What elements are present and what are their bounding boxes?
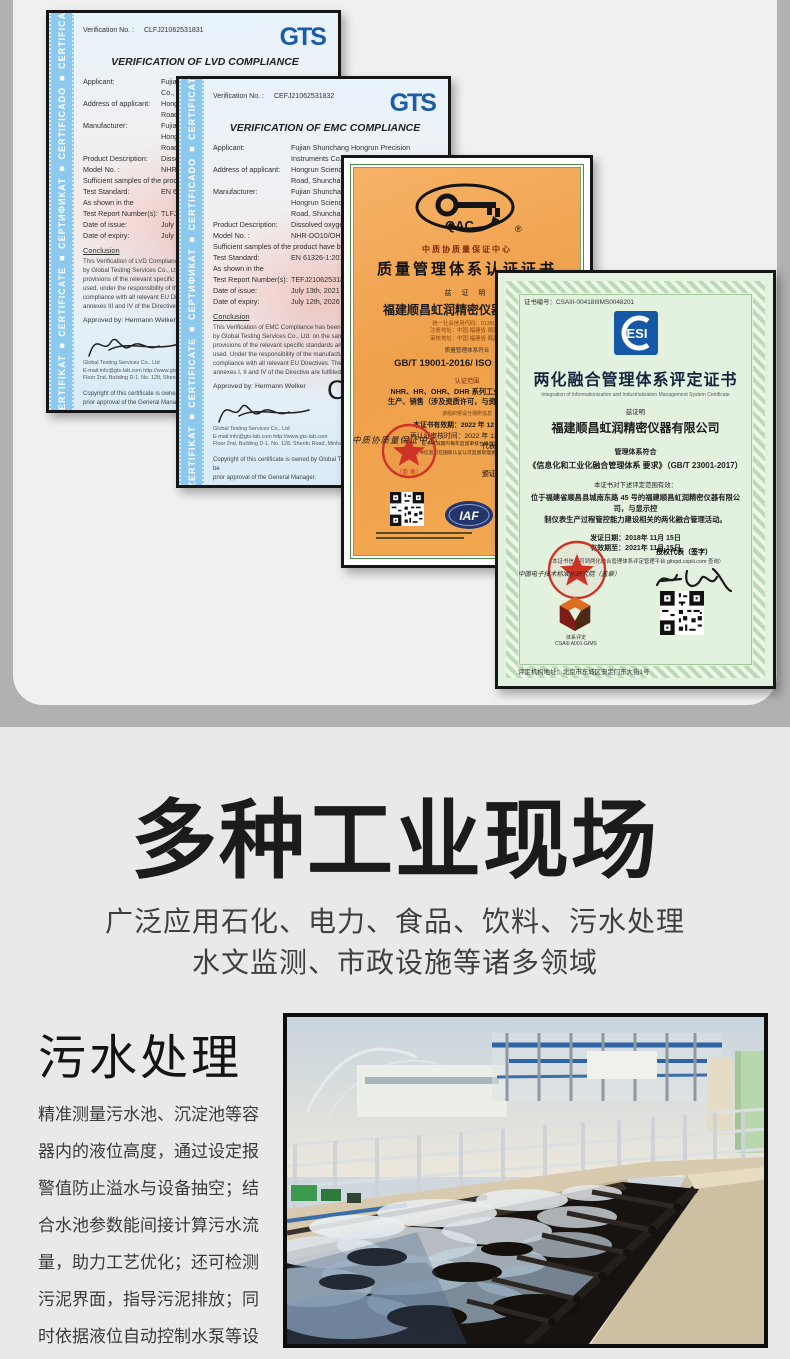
gts-logo: GTS [390,89,435,118]
issuer-name: 中国电子技术标准化研究院（盖章） [518,569,636,578]
certificate-esi: 证书编号：CSAIII-00418IIIMS0048201 ESI 两化融合管理… [495,270,776,689]
qr-code [660,591,704,635]
field-label: Date of expiry: [213,296,291,307]
certificate-title: 两化融合管理体系评定证书 [524,366,747,390]
field-label: Manufacturer: [213,186,291,219]
field-label: Date of expiry: [83,230,161,241]
sewage-plant-illustration [287,1017,764,1344]
issuer-script: 中质协质量保证中心 [352,434,482,446]
certificate-title-en: Integration of Informationization and In… [524,392,747,398]
field-label: Test Standard: [83,186,161,197]
verification-label: Verification No. : [213,93,264,100]
field-label: Manufacturer: [83,120,161,153]
field-label: Applicant: [83,76,161,98]
representative-label: 授权代表（签字） [656,547,712,557]
field-label: Model No. : [213,230,291,241]
assessor-address: 评定机构地址：北京市东城区安定门东大街1号 [518,667,649,676]
company-name: 福建顺昌虹润精密仪器有限公司 [524,419,747,436]
band-text: ZERTIFIKAT ■ CERTIFICATE ■ СЕРТИФИКАТ ■ … [187,77,197,488]
certificate-number: 证书编号：CSAIII-00418IIIMS0048201 [524,297,747,306]
assessment-hexagon-logo [558,595,592,633]
certificate-side-band: ZERTIFIKAT ■ CERTIFICATE ■ СЕРТИФИКАТ ■ … [49,13,74,410]
sewage-plant-photo [283,1013,768,1348]
iaf-logo: IAF [444,500,494,530]
signature-icon [81,326,191,360]
scope-intro: 本证书对下述评定范围有效： [524,480,747,489]
svg-text:ESI: ESI [626,326,647,341]
sewage-description: 精准测量污水池、沉淀池等容 器内的液位高度，通过设定报 警值防止溢水与设备抽空；… [38,1096,270,1359]
field-label: Product Description: [213,219,291,230]
field-label: Model No. : [83,164,161,175]
prove-label: 兹证明 [524,407,747,416]
micro-text-bar [376,532,472,534]
certificate-side-band: ZERTIFIKAT ■ CERTIFICATE ■ СЕРТИФИКАТ ■ … [179,79,204,485]
certificate-title: VERIFICATION OF EMC COMPLIANCE [209,122,441,134]
field-label: Date of issue: [213,285,291,296]
svg-text:（盖 章）: （盖 章） [396,468,422,476]
field-label: As shown in the [83,197,161,208]
svg-text:QAC: QAC [445,218,475,233]
scope-text: 位于福建省顺昌县城南东路 45 号的福建顺昌虹润精密仪器有限公司，与显示控 制仪… [524,492,747,525]
certificate-content: 证书编号：CSAIII-00418IIIMS0048201 ESI 两化融合管理… [524,297,747,565]
verification-number: CEFJ21062531832 [274,93,334,100]
qac-key-logo: QAC ® [407,182,527,236]
standard-line: 《信息化和工业化融合管理体系 要求》（GB/T 23001-2017） [524,460,747,471]
signature-icon [211,392,321,426]
system-line: 管理体系符合 [524,447,747,457]
section-heading: 多种工业现场 [0,770,790,895]
top-gray-background: ZERTIFIKAT ■ CERTIFICATE ■ СЕРТИФИКАТ ■ … [0,0,790,727]
verification-number: CLFJ21062531831 [144,27,204,34]
verification-label: Verification No. : [83,27,134,34]
field-label: As shown in the [213,263,291,274]
field-label: Date of issue: [83,219,161,230]
svg-text:IAF: IAF [459,509,479,523]
section-subtitle-line1: 广泛应用石化、电力、食品、饮料、污水处理 [0,900,790,940]
certificates-card: ZERTIFIKAT ■ CERTIFICATE ■ СЕРТИФИКАТ ■ … [13,0,777,705]
field-label: Product Description: [83,153,161,164]
red-seal-stamp: （盖 章） [380,422,438,480]
field-label: Test Report Number(s): [213,274,291,285]
page: ZERTIFIKAT ■ CERTIFICATE ■ СЕРТИФИКАТ ■ … [0,0,790,1359]
field-label: Test Report Number(s): [83,208,161,219]
section-subtitle-line2: 水文监测、市政设施等诸多领域 [0,941,790,981]
qr-code [390,492,424,526]
esi-logo: ESI [614,311,658,355]
svg-text:®: ® [515,224,522,234]
sewage-title: 污水处理 [38,1018,242,1088]
gts-logo: GTS [280,23,325,52]
issuing-org: 中质协质量保证中心 [354,244,580,255]
band-text: ZERTIFIKAT ■ CERTIFICATE ■ СЕРТИФИКАТ ■ … [57,10,67,413]
field-label: Address of applicant: [83,98,161,120]
micro-text-bar [376,537,464,539]
certificate-title: VERIFICATION OF LVD COMPLIANCE [79,56,331,68]
field-label: Applicant: [213,142,291,164]
hexagon-caption: 体系评定 CSAIII A001-GIMS [534,635,618,648]
field-label: Address of applicant: [213,164,291,186]
field-label: Test Standard: [213,252,291,263]
